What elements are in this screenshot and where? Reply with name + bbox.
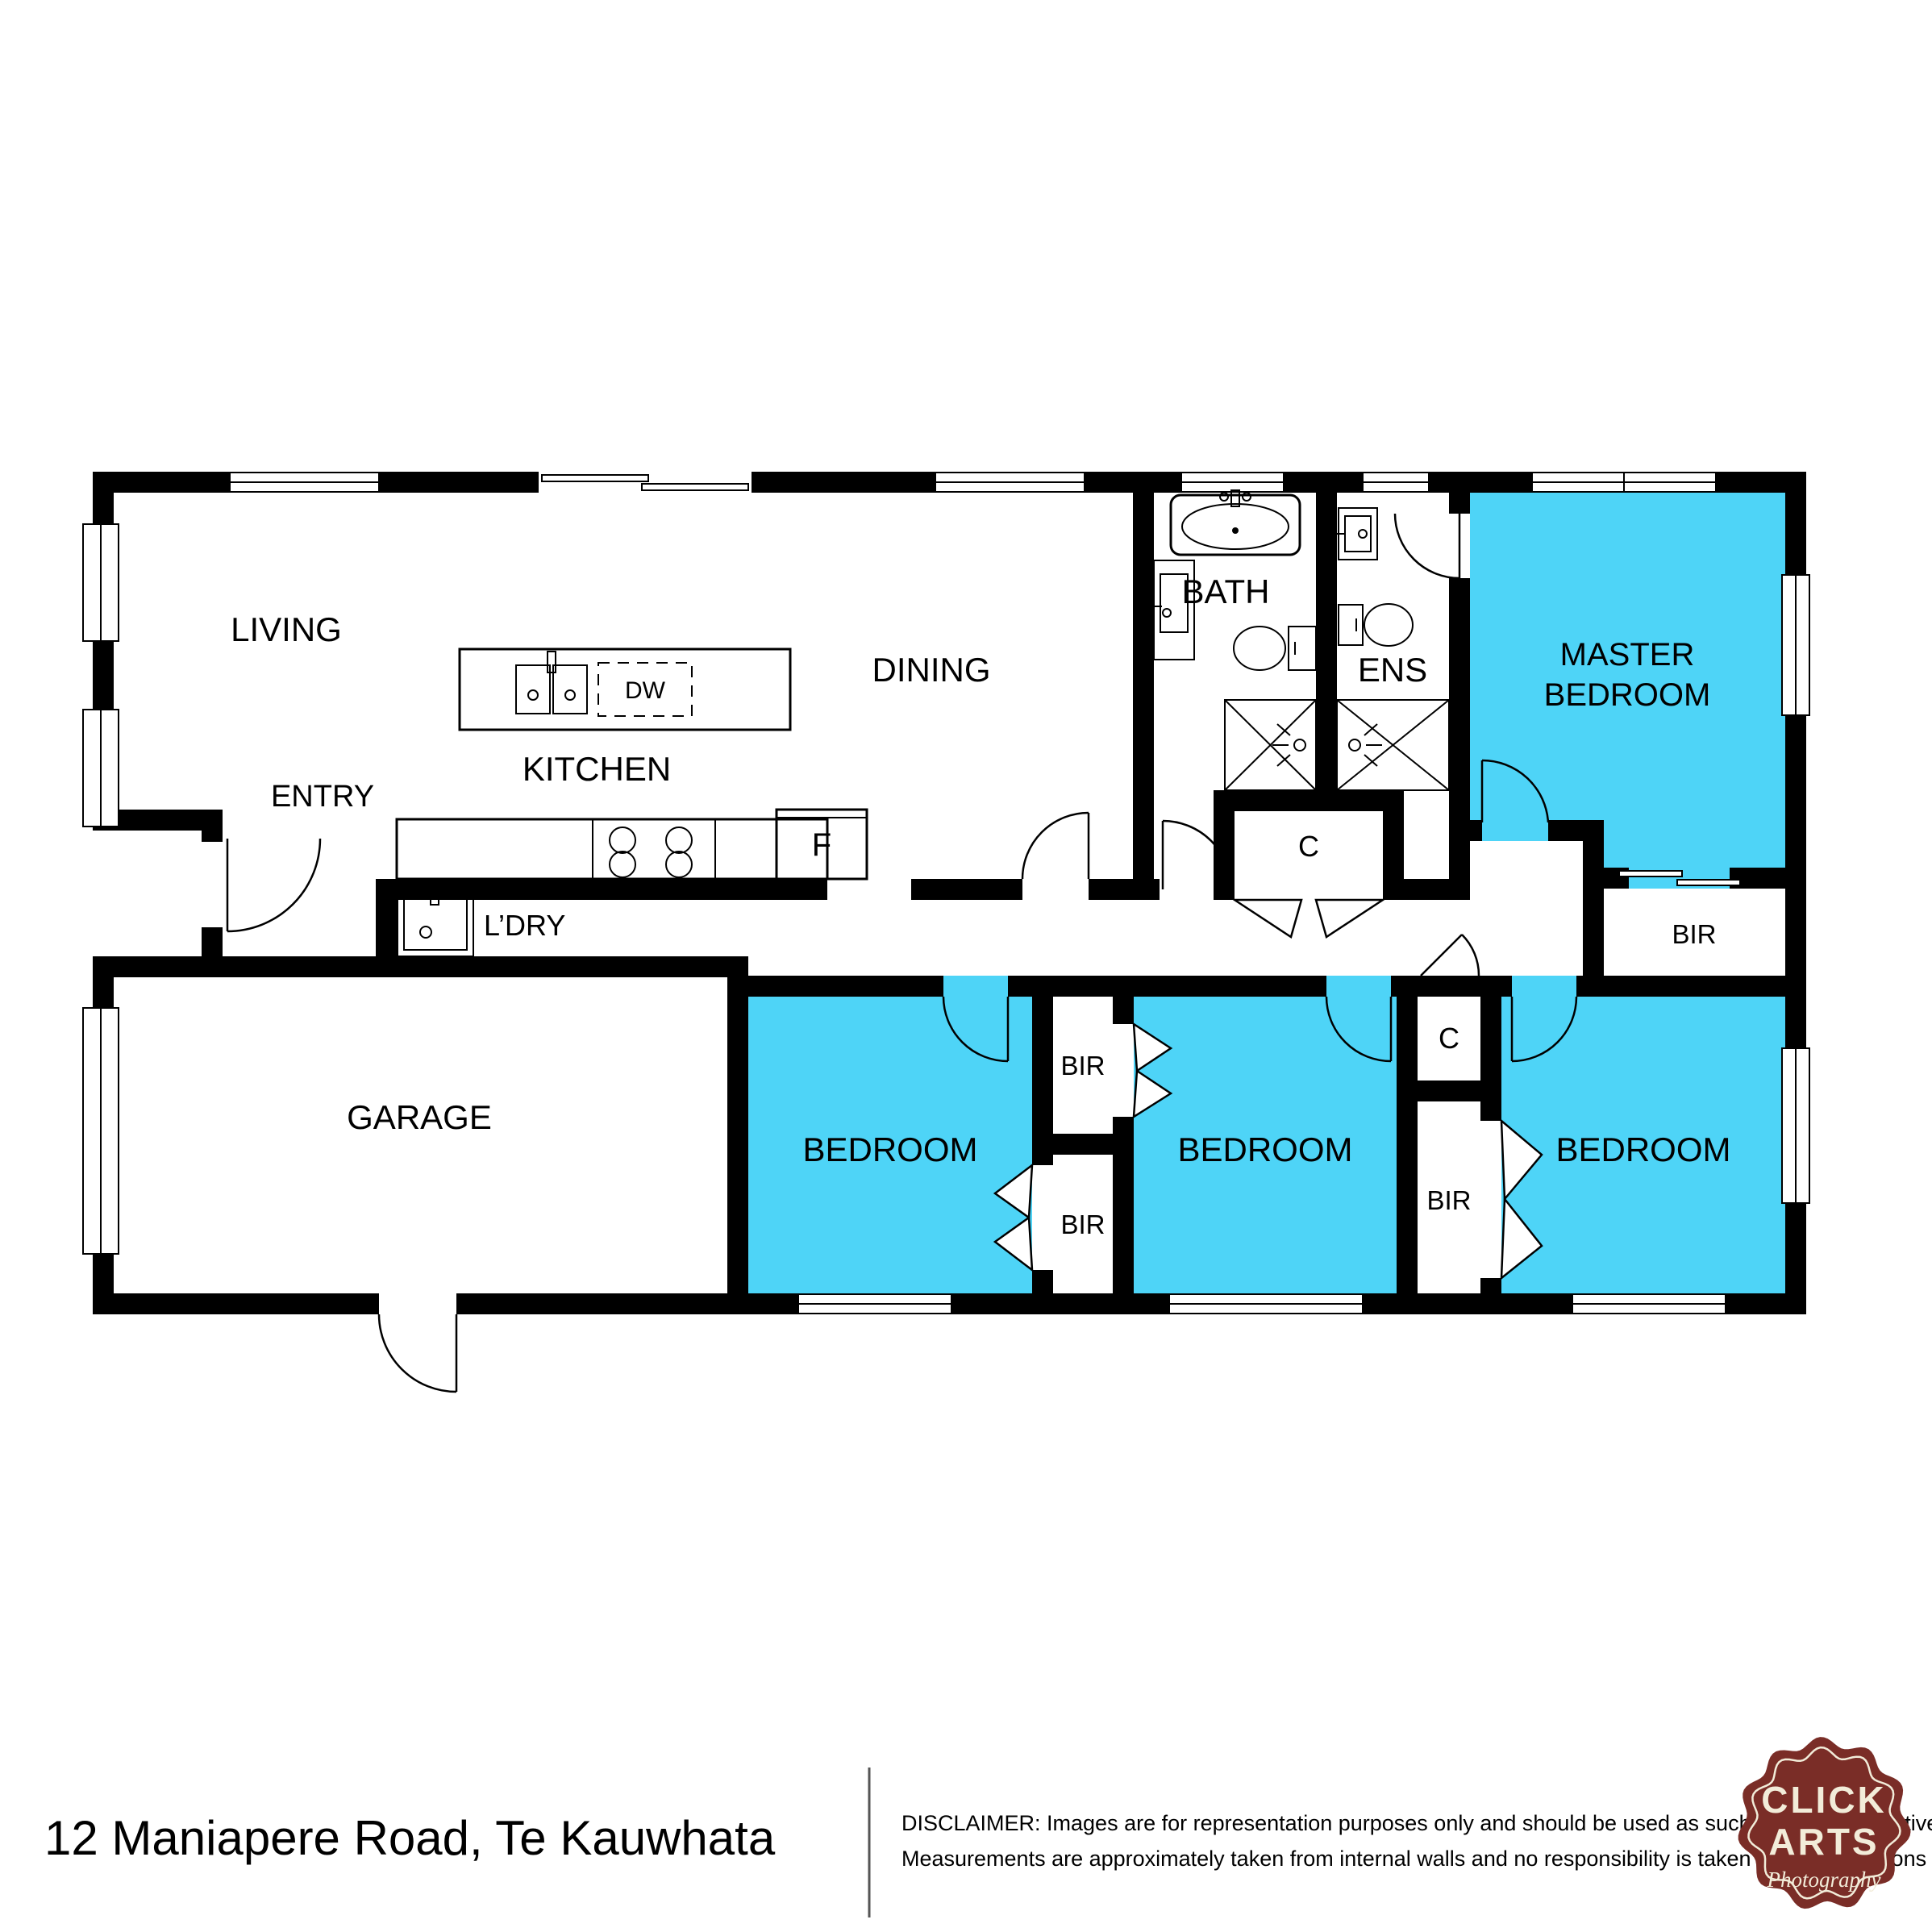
bath-toilet-icon (1234, 627, 1316, 670)
address: 12 Maniapere Road, Te Kauwhata (44, 1811, 776, 1865)
window (1532, 473, 1716, 492)
window (1181, 473, 1284, 492)
room-fills (748, 493, 1785, 1293)
doorway-fill (1512, 976, 1576, 997)
label-dishwasher: DW (625, 677, 666, 704)
doorway-fill (1326, 976, 1391, 997)
floorplan-page: LIVING ENTRY KITCHEN DW DINING BATH ENS … (0, 0, 1932, 1932)
kitchen-bench (397, 819, 827, 879)
label-fridge: F (812, 827, 831, 863)
ens-vanity-icon (1335, 508, 1377, 560)
window (1782, 575, 1809, 715)
hall-door-icon (1022, 813, 1089, 879)
floorplan-canvas: LIVING ENTRY KITCHEN DW DINING BATH ENS … (0, 0, 1932, 1932)
label-master-line2: BEDROOM (1544, 677, 1711, 713)
ens-toilet-icon (1339, 604, 1413, 646)
label-ens: ENS (1358, 651, 1427, 689)
label-garage: GARAGE (347, 1098, 492, 1136)
hall-closet-door-icon (1421, 935, 1479, 976)
window (935, 473, 1085, 492)
label-bedroom-2: BEDROOM (1177, 1130, 1352, 1168)
garage-rear-door-icon (379, 1314, 456, 1392)
window (83, 710, 119, 827)
label-bedroom-1: BEDROOM (802, 1130, 977, 1168)
hall-closet-bifold-icon (1235, 900, 1383, 937)
window (1169, 1294, 1363, 1314)
doorway-fill (943, 976, 1008, 997)
label-bath: BATH (1182, 573, 1270, 610)
window (83, 524, 119, 641)
patio-slider-icon (539, 472, 752, 493)
logo-tagline: Photography (1767, 1867, 1881, 1892)
ens-shower-icon (1337, 700, 1449, 790)
label-bir-3: BIR (1426, 1185, 1471, 1215)
window (798, 1294, 951, 1314)
footer: 12 Maniapere Road, Te Kauwhata DISCLAIME… (44, 1768, 1932, 1917)
label-closet-hall: C (1298, 830, 1319, 863)
window (230, 473, 379, 492)
logo-line2: ARTS (1768, 1821, 1879, 1863)
logo-line1: CLICK (1761, 1779, 1887, 1821)
entry-door-icon (227, 839, 320, 931)
window (1363, 473, 1429, 492)
bath-shower-icon (1225, 700, 1316, 790)
label-closet-2: C (1439, 1022, 1459, 1055)
window (1572, 1294, 1726, 1314)
label-bir-1: BIR (1060, 1051, 1105, 1081)
label-entry: ENTRY (271, 780, 374, 814)
ens-door-icon (1395, 514, 1459, 578)
window (1782, 1048, 1809, 1203)
label-living: LIVING (231, 610, 342, 648)
label-dining: DINING (872, 651, 991, 689)
window (83, 1008, 119, 1254)
bathtub-icon (1171, 490, 1300, 555)
logo: CLICK ARTS Photography (1738, 1737, 1911, 1909)
label-laundry: L’DRY (484, 909, 565, 942)
label-bedroom-3: BEDROOM (1555, 1130, 1730, 1168)
label-bir-master: BIR (1672, 919, 1716, 949)
doorway-fill (1482, 820, 1548, 841)
label-master-line1: MASTER (1560, 637, 1695, 672)
label-kitchen: KITCHEN (523, 750, 671, 788)
label-bir-2: BIR (1060, 1210, 1105, 1239)
